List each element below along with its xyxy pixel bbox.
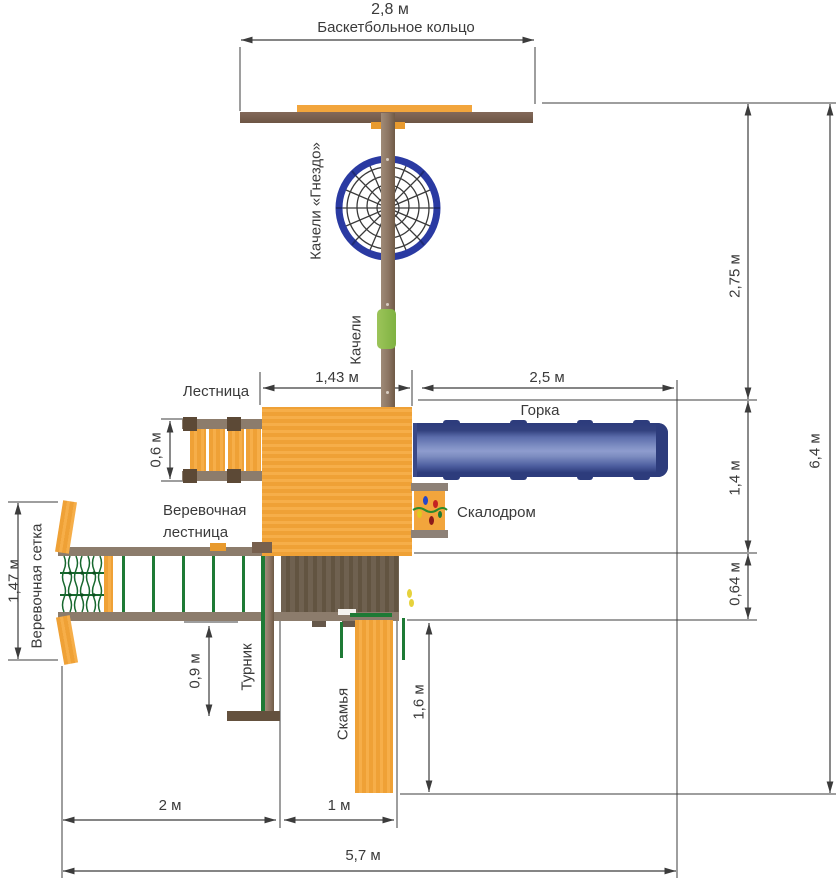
lower-platform-tab <box>342 620 356 627</box>
net-divider-plank <box>104 556 113 612</box>
rail-block-orange <box>210 543 226 551</box>
slide <box>413 423 668 477</box>
ladder-block <box>183 417 197 431</box>
rope-net-label: Веревочная сетка <box>30 523 45 648</box>
dim-upper-height-label: 2,75 м <box>728 254 743 298</box>
rope-rung <box>212 556 215 612</box>
ladder-label: Лестница <box>183 384 249 401</box>
climbing-hold <box>429 516 434 525</box>
post-bolt <box>386 303 389 306</box>
climbing-wall-vine <box>413 505 449 515</box>
playground-plan-diagram: 2,8 м Баскетбольное кольцо Качели «Гнезд… <box>0 0 838 880</box>
rope-ladder-label-line1: Веревочная <box>163 503 246 520</box>
dim-mid-span-label: 1 м <box>328 798 351 815</box>
climbing-wall-cap-top <box>411 483 448 491</box>
green-post-right <box>402 618 405 660</box>
slide-end-cap <box>656 423 668 477</box>
swing-label: Качели <box>349 315 364 365</box>
dim-left-span-label: 2 м <box>159 798 182 815</box>
ladder-block <box>227 417 241 431</box>
rope-rung <box>122 556 125 612</box>
ladder-plank <box>209 429 225 471</box>
ladder-block <box>227 469 241 483</box>
pullup-bar-label: Турник <box>240 643 255 690</box>
dim-net-height-label: 1,47 м <box>7 559 22 603</box>
rope-rung <box>242 556 245 612</box>
ladder-block <box>183 469 197 483</box>
dim-ladder-width-label: 0,6 м <box>149 432 164 467</box>
dim-bench-length-label: 1,6 м <box>412 684 427 719</box>
rail-block-brown <box>252 542 272 553</box>
rope-rung <box>152 556 155 612</box>
climbing-hold <box>423 496 428 505</box>
climbing-wall-label: Скалодром <box>457 505 536 522</box>
dim-wall-zone-label: 0,64 м <box>728 562 743 606</box>
rope-ladder-label-line2: лестница <box>163 525 228 542</box>
bench-green-strip <box>350 613 392 617</box>
yellow-marker <box>407 589 412 598</box>
rope-rung <box>182 556 185 612</box>
green-post-left <box>340 622 343 658</box>
dim-top-width-label: 2,8 м <box>371 1 409 19</box>
ladder-plank <box>228 429 244 471</box>
yellow-marker <box>409 599 414 607</box>
dim-platform-width-label: 1,43 м <box>315 370 359 387</box>
slide-label: Горка <box>520 403 559 420</box>
lower-platform-tab <box>312 620 326 627</box>
ladder-plank <box>246 429 261 471</box>
climbing-wall-cap-bottom <box>411 530 448 538</box>
bench-label: Скамья <box>336 688 351 740</box>
nest-swing-label: Качели «Гнездо» <box>309 142 324 260</box>
ladder-plank <box>190 429 206 471</box>
pullup-bar-post <box>265 556 274 714</box>
pullup-bar-base <box>227 711 280 721</box>
dim-slide-zone-label: 1,4 м <box>728 460 743 495</box>
basketball-hoop-label: Баскетбольное кольцо <box>317 20 475 37</box>
main-platform <box>262 407 412 556</box>
post-bolt <box>386 391 389 394</box>
dim-slide-length-label: 2,5 м <box>529 370 564 387</box>
swing-post <box>381 113 395 408</box>
dim-total-height-label: 6,4 м <box>808 433 823 468</box>
bench <box>355 620 393 793</box>
swing-seat <box>377 309 396 349</box>
rope-net <box>60 552 108 616</box>
dim-total-width-label: 5,7 м <box>345 848 380 865</box>
dim-bar-offset-label: 0,9 м <box>188 653 203 688</box>
post-bolt <box>386 158 389 161</box>
slide-left-edge <box>413 423 417 477</box>
